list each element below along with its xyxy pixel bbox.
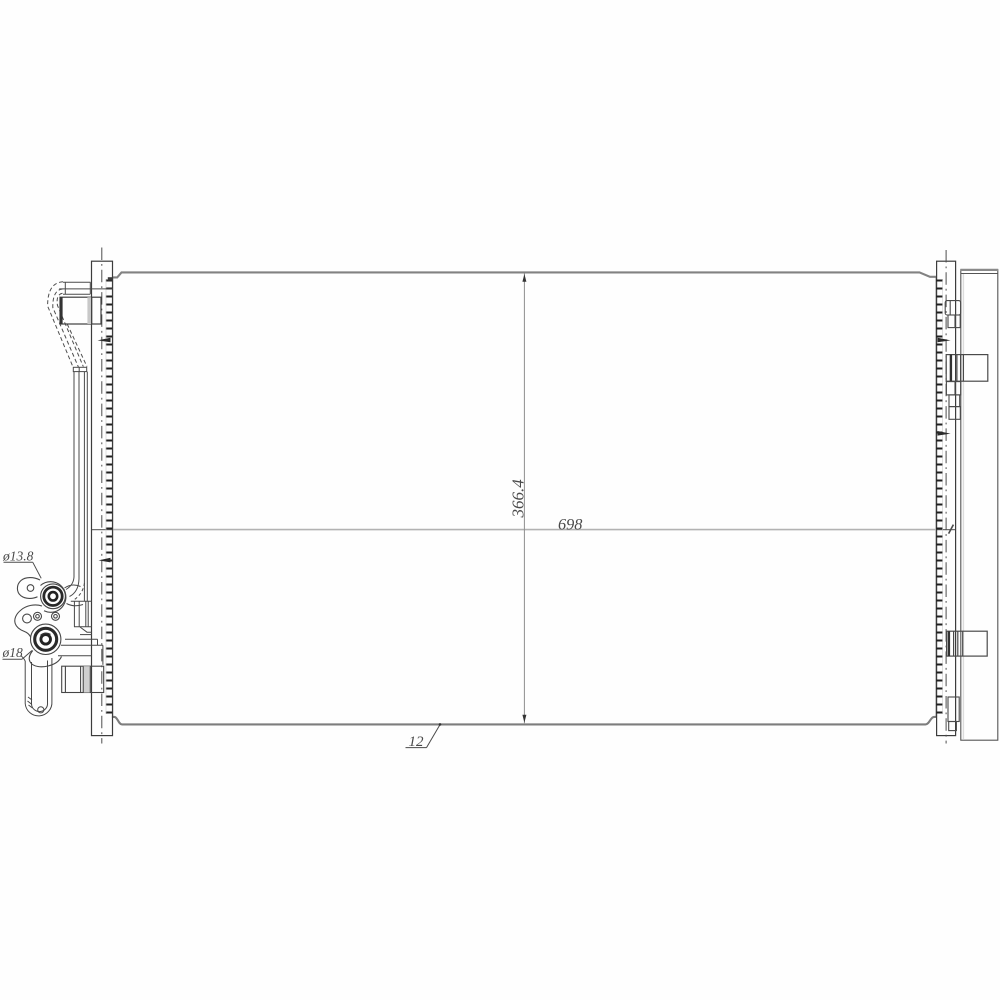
svg-text:366.4: 366.4 [509, 479, 528, 519]
svg-text:698: 698 [558, 515, 582, 534]
svg-text:ø18: ø18 [2, 645, 24, 660]
svg-text:ø13.8: ø13.8 [2, 549, 34, 564]
